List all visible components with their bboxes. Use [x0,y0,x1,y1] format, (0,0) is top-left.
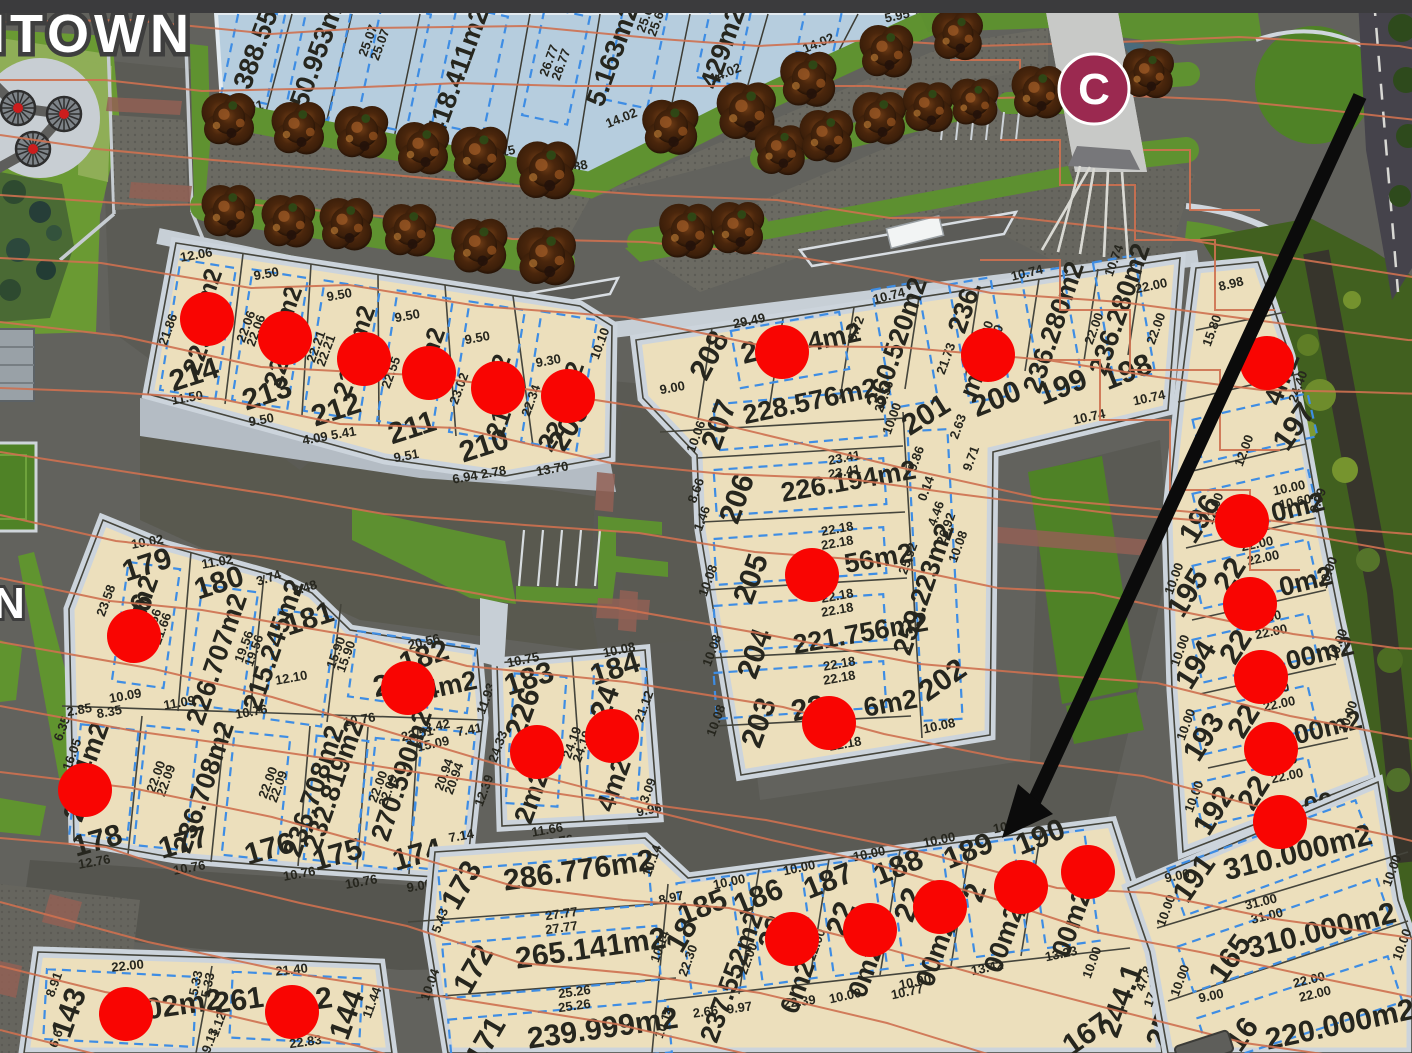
svg-text:C: C [1078,65,1110,114]
svg-text:261: 261 [212,981,266,1021]
svg-text:N: N [0,579,25,628]
